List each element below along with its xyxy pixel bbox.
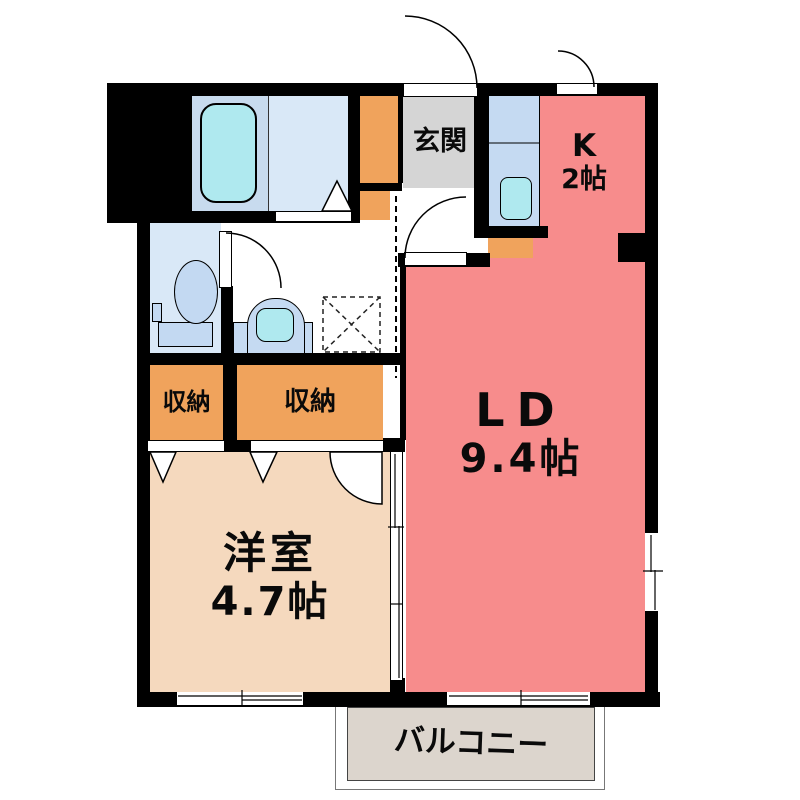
living-dining-label-text: LD <box>475 384 567 437</box>
storage-right-label: 収納 <box>237 365 383 440</box>
window-western-glyph <box>178 690 302 706</box>
western-room-label-text: 洋室 <box>223 530 317 579</box>
kitchen-label: K 2帖 <box>540 112 628 212</box>
storage-right-text: 収納 <box>284 388 336 418</box>
storage-left-text: 収納 <box>163 389 211 417</box>
window-right-glyph <box>643 535 663 610</box>
closet-door-mark-right <box>250 452 277 482</box>
entrance-label-text: 玄関 <box>413 126 467 157</box>
hall-ld-door-arc <box>405 197 466 258</box>
kitchen-label-text: K <box>572 129 596 165</box>
linework-layer <box>0 0 800 800</box>
western-room-size-text: 4.7帖 <box>211 579 330 625</box>
window-balcony-glyph <box>449 690 588 706</box>
sliding-partition-glyph <box>388 454 404 678</box>
toilet-door-arc <box>226 233 281 288</box>
entrance-label: 玄関 <box>403 95 477 188</box>
bathroom-folding-door-icon <box>322 181 352 211</box>
closet-door-mark-left <box>150 452 176 482</box>
storage-left-label: 収納 <box>150 365 223 440</box>
balcony-label: バルコニー <box>346 703 596 786</box>
kitchen-size-text: 2帖 <box>561 164 607 195</box>
washing-machine-pan-icon <box>323 297 380 352</box>
western-room-door-arc <box>330 452 382 504</box>
living-dining-label: LD 9.4帖 <box>406 368 636 498</box>
floor-plan: 玄関 K 2帖 LD 9.4帖 収納 収納 洋室 4.7帖 バルコニー <box>0 0 800 800</box>
entrance-door-arc <box>405 16 477 88</box>
western-room-label: 洋室 4.7帖 <box>150 510 390 645</box>
balcony-label-text: バルコニー <box>393 723 549 764</box>
kitchen-small-door-arc <box>558 51 594 87</box>
living-dining-size-text: 9.4帖 <box>460 436 583 482</box>
